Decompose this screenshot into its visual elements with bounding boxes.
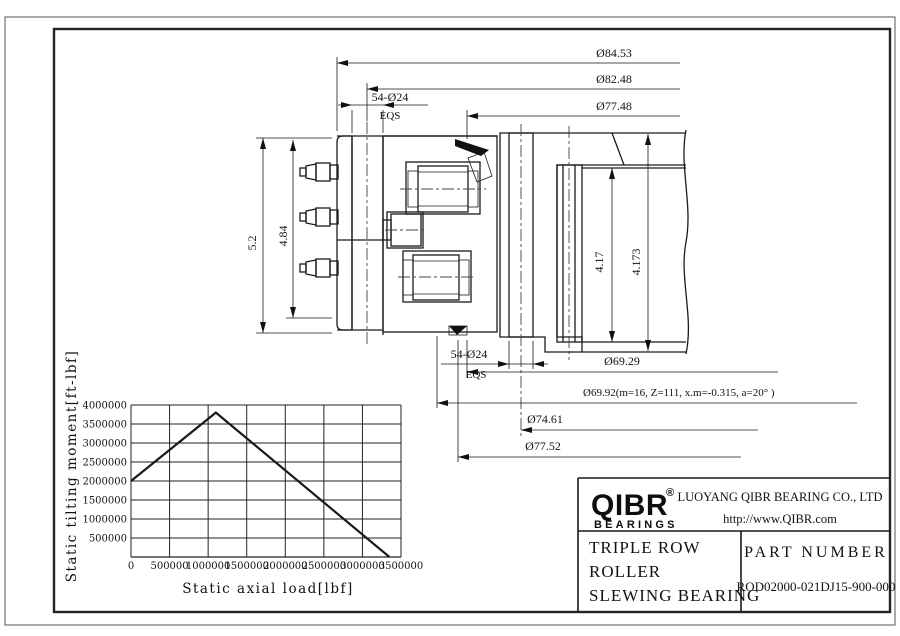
outer-ring (500, 133, 624, 352)
product-title-line2: ROLLER (589, 562, 661, 581)
upper-seal (455, 139, 492, 182)
chart-tick-label: 3500000 (379, 561, 424, 572)
dim-bolt-holes-top: 54-Ø24 (372, 90, 409, 104)
dim-arrowhead (341, 102, 352, 108)
dim-bolt-circle-upper: Ø82.48 (596, 72, 632, 86)
dim-bolt-circle-lower: Ø74.61 (527, 412, 563, 426)
dim-arrowhead (290, 140, 296, 151)
chart-tick-label: 3500000 (82, 420, 127, 431)
dim-arrowhead (645, 340, 651, 351)
dim-arrowhead (458, 454, 469, 460)
chart-tick-label: 500000 (150, 561, 188, 572)
chart-tick-label: 1500000 (82, 496, 127, 507)
dim-root-diameter: Ø69.29 (604, 354, 640, 368)
dim-gear-width-2: 4.173 (629, 249, 643, 276)
dim-arrowhead (521, 427, 532, 433)
dim-arrowhead (337, 60, 348, 66)
dim-arrowhead (290, 307, 296, 318)
part-number-value: ROD02000-021DJ15-900-000 (737, 579, 896, 594)
grease-fitting (300, 208, 338, 226)
gear-rim (557, 165, 582, 342)
title-block: QIBR ® BEARINGS LUOYANG QIBR BEARING CO.… (578, 478, 895, 612)
load-chart: 0500000100000015000002000000250000030000… (64, 350, 423, 597)
mating-structure (582, 130, 688, 354)
lower-seal (449, 326, 467, 335)
grease-fitting (300, 259, 338, 277)
dim-arrowhead (437, 400, 448, 406)
company-website: http://www.QIBR.com (723, 512, 837, 526)
chart-tick-label: 2500000 (82, 458, 127, 469)
logo-text: QIBR (591, 489, 668, 522)
technical-drawing-svg: Ø84.53 Ø82.48 Ø77.48 54-Ø24 EQS 5.2 4.84… (0, 0, 900, 636)
registered-mark-icon: ® (666, 487, 674, 499)
dim-arrowhead (467, 113, 478, 119)
company-name: LUOYANG QIBR BEARING CO., LTD (677, 490, 882, 504)
dim-arrowhead (533, 361, 544, 367)
chart-tick-label: 1000000 (82, 515, 127, 526)
chart-tick-label: 3000000 (82, 439, 127, 450)
grease-fitting (300, 163, 338, 181)
dim-total-height: 5.2 (245, 236, 259, 251)
company-logo: QIBR ® BEARINGS (591, 487, 678, 531)
dim-ring-height: 4.84 (276, 226, 290, 247)
dim-gear-width: 4.17 (592, 252, 606, 273)
dim-gear-data-note: Ø69.92(m=16, Z=111, x.m=-0.315, a=20° ) (583, 387, 775, 399)
dim-arrowhead (260, 322, 266, 333)
drawing-sheet: Ø84.53 Ø82.48 Ø77.48 54-Ø24 EQS 5.2 4.84… (0, 0, 900, 636)
dim-seal-diameter: Ø77.48 (596, 99, 632, 113)
dim-arrowhead (645, 134, 651, 145)
dim-arrowhead (498, 361, 509, 367)
dim-arrowhead (609, 168, 615, 179)
chart-plot-area: 0500000100000015000002000000250000030000… (82, 401, 423, 573)
chart-tick-label: 4000000 (82, 401, 127, 412)
chart-y-axis-title: Static tilting moment[ft-lbf] (64, 350, 80, 583)
part-number-label: PART NUMBER (744, 544, 888, 561)
dim-arrowhead (260, 138, 266, 149)
chart-tick-label: 2000000 (82, 477, 127, 488)
dim-bolt-holes-bottom: 54-Ø24 (451, 347, 488, 361)
dim-arrowhead (609, 331, 615, 342)
product-title-line3: SLEWING BEARING (589, 586, 760, 605)
seal-plate (337, 136, 352, 330)
product-title-line1: TRIPLE ROW (589, 538, 701, 557)
dim-bolt-holes-top-eqs: EQS (380, 110, 401, 122)
dim-outer-diameter: Ø84.53 (596, 46, 632, 60)
chart-tick-label: 0 (128, 561, 134, 572)
logo-subtext: BEARINGS (594, 519, 678, 531)
drawing-frame (5, 17, 895, 625)
chart-tick-label: 500000 (89, 534, 127, 545)
chart-x-axis-title: Static axial load[lbf] (182, 581, 354, 597)
lower-roller (403, 255, 469, 300)
dim-mount-diameter: Ø77.52 (525, 439, 561, 453)
break-line (684, 130, 688, 354)
